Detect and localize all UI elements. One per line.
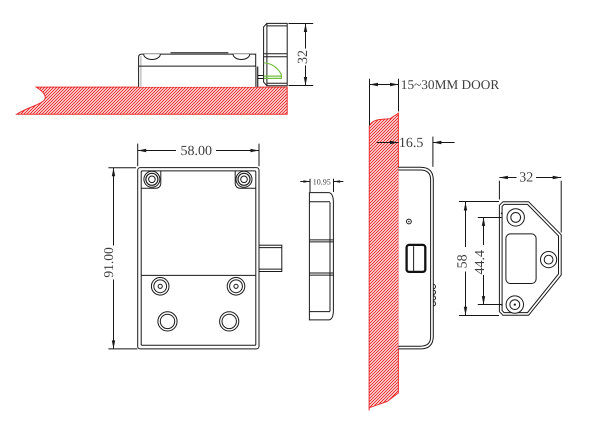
svg-text:15~30MM DOOR: 15~30MM DOOR	[401, 77, 500, 92]
svg-text:32: 32	[296, 50, 311, 64]
svg-text:58: 58	[456, 254, 471, 268]
svg-text:32: 32	[519, 171, 533, 186]
svg-text:16.5: 16.5	[399, 136, 424, 151]
svg-text:58.00: 58.00	[180, 144, 212, 159]
svg-text:10.95: 10.95	[313, 177, 331, 186]
svg-text:91.00: 91.00	[101, 247, 116, 278]
svg-text:44.4: 44.4	[473, 250, 488, 275]
